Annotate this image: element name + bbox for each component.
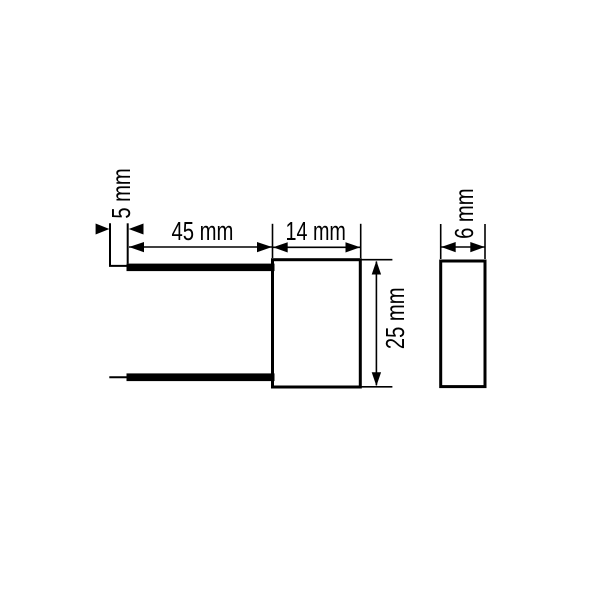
svg-text:25 mm: 25 mm — [381, 288, 410, 350]
svg-text:6 mm: 6 mm — [450, 189, 479, 239]
svg-text:14 mm: 14 mm — [286, 216, 346, 245]
svg-text:45 mm: 45 mm — [171, 217, 233, 246]
svg-text:5 mm: 5 mm — [107, 168, 136, 218]
